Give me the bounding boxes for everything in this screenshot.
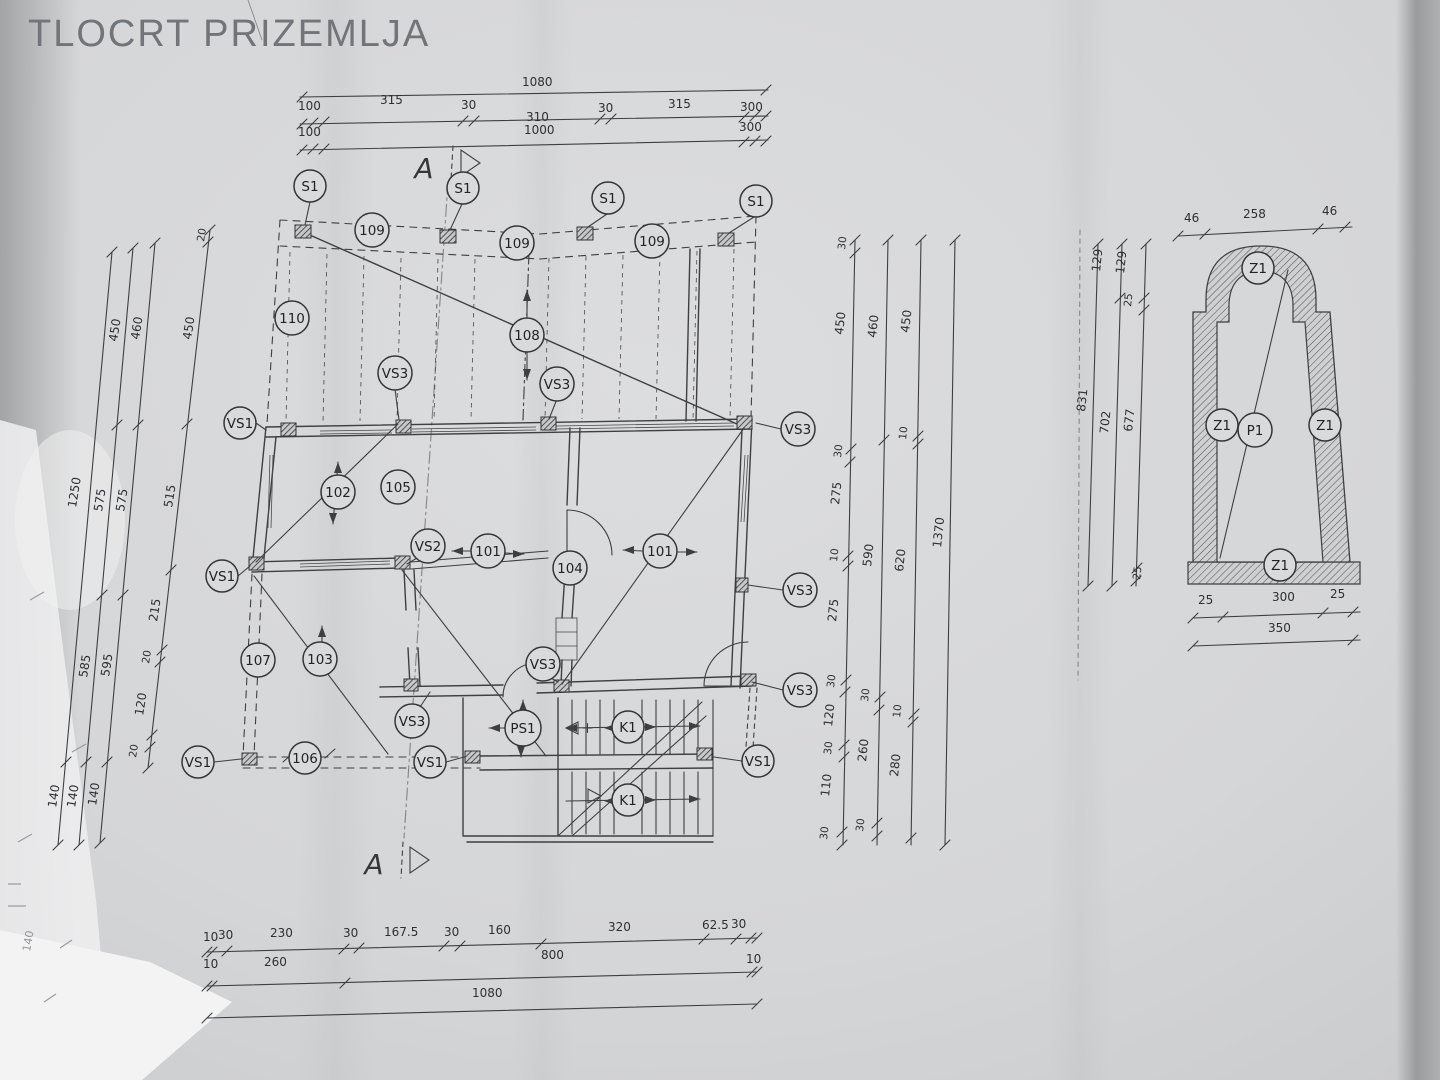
pier [395,556,410,569]
dim: 100 [298,125,321,139]
dim: 30 [836,236,849,251]
mark-vs1: VS1 [414,746,446,778]
dim: 450 [832,311,848,335]
dim: 10 [746,952,761,966]
mark-text: 103 [307,652,333,668]
mark-text: VS1 [417,755,443,771]
mark-text: VS2 [415,539,441,555]
mark-ps1: PS1 [505,710,541,746]
dim: 275 [825,598,841,622]
pier [737,416,752,429]
mark-text: 110 [279,311,305,327]
dim: 160 [488,923,511,937]
mark-s1: S1 [294,170,326,202]
mark-text: VS3 [399,714,425,730]
column-pier [718,233,734,246]
dim: 25 [1330,587,1345,601]
mark-vs3: VS3 [526,647,560,681]
mark-text: VS3 [787,683,813,699]
mark-text: Z1 [1213,418,1231,434]
mark-text: Z1 [1271,558,1289,574]
mark-text: VS3 [544,377,570,393]
mark-text: PS1 [510,721,535,737]
mark-text: VS3 [382,366,408,382]
mark-k1: K1 [612,711,644,743]
dim: 1000 [524,123,555,137]
mark-109: 109 [500,226,534,260]
right-dark-band [1396,0,1440,1080]
dim: 129 [1113,250,1129,274]
mark-text: VS1 [209,569,235,585]
mark-z1: Z1 [1242,252,1274,284]
mark-text: 101 [475,544,501,560]
mark-k1: K1 [612,784,644,816]
mark-101: 101 [471,534,505,568]
mark-s1: S1 [447,172,479,204]
mark-text: 104 [557,561,583,577]
fold-crease-right [1048,0,1112,1080]
mark-text: 105 [385,480,411,496]
pier [249,557,264,570]
dim: 280 [887,753,903,777]
dim: 30 [859,688,872,703]
dim: 450 [898,309,914,333]
pier [465,751,480,763]
column-pier [440,230,456,243]
dim: 1080 [522,75,553,89]
dim: 25 [1122,293,1135,308]
dim: 30 [598,101,613,115]
dim: 30 [854,818,867,833]
mark-p1: P1 [1238,413,1272,447]
mark-101: 101 [643,534,677,568]
mark-text: VS3 [787,583,813,599]
section-letter-top: A [412,152,433,185]
mark-106: 106 [289,742,321,774]
pier [281,423,296,436]
mark-text: 109 [504,236,530,252]
mark-s1: S1 [592,182,624,214]
dim: 20 [127,743,141,758]
dim: 10 [891,704,904,719]
dim: 702 [1097,410,1113,434]
mark-text: Z1 [1249,261,1267,277]
dim: 30 [343,926,358,940]
mark-text: S1 [301,179,318,195]
dim: 25 [1131,566,1144,581]
dim: 320 [608,920,631,934]
dim: 20 [140,649,154,664]
pier [741,674,756,686]
mark-vs3: VS3 [781,412,815,446]
mark-vs1: VS1 [742,745,774,777]
dim: 10 [897,426,910,441]
dim: 30 [218,928,233,942]
mark-vs1: VS1 [206,560,238,592]
mark-text: P1 [1247,423,1264,439]
dim: 46 [1322,204,1337,218]
mark-vs2: VS2 [411,529,445,563]
dim: 110 [818,773,834,797]
dim: 25 [1198,593,1213,607]
mark-text: K1 [619,793,636,809]
mark-text: 101 [647,544,673,560]
pier [404,679,418,691]
mark-z1: Z1 [1309,409,1341,441]
mark-text: S1 [599,191,616,207]
pier [697,748,712,760]
mark-text: Z1 [1316,418,1334,434]
dim: 831 [1074,388,1090,412]
dim: 260 [855,738,871,762]
scanned-floor-plan-photo: 140 TLOCRT PRIZEMLJA 1080 100 315 30 310… [0,0,1440,1080]
mark-vs3: VS3 [783,673,817,707]
mark-text: VS1 [185,755,211,771]
dim: 20 [195,227,209,242]
mark-text: VS1 [745,754,771,770]
pier [242,753,257,765]
dim: 30 [731,917,746,931]
section-letter-bottom: A [362,848,383,881]
mark-text: VS1 [227,416,253,432]
mark-107: 107 [241,643,275,677]
dim: 10 [828,548,841,563]
dim: 30 [825,674,838,689]
mark-102: 102 [321,475,355,509]
dim: 1080 [472,986,503,1000]
mark-109: 109 [635,224,669,258]
mark-text: 109 [359,223,385,239]
dim: 677 [1121,408,1137,432]
dim: 300 [1272,590,1295,604]
dim: 100 [298,99,321,113]
dim: 315 [668,97,691,111]
mark-108: 108 [510,318,544,352]
mark-vs3: VS3 [540,367,574,401]
mark-s1: S1 [740,185,772,217]
mark-text: 107 [245,653,271,669]
dim: 30 [444,925,459,939]
dim: 120 [821,703,837,727]
dim: 10 [203,957,218,971]
dim: 230 [270,926,293,940]
dim: 300 [739,120,762,134]
dim: 350 [1268,621,1291,635]
mark-105: 105 [381,470,415,504]
dim: 315 [380,93,403,107]
mark-vs1: VS1 [224,407,256,439]
fold-crease-left [295,0,375,1080]
pier [736,578,748,592]
mark-text: S1 [747,194,764,210]
dim: 800 [541,948,564,962]
dim: 275 [828,481,844,505]
mark-z1: Z1 [1206,409,1238,441]
dim: 167.5 [384,925,418,939]
dim: 460 [865,314,881,338]
dim: 30 [461,98,476,112]
dim: 30 [818,826,831,841]
drawing-canvas: 140 TLOCRT PRIZEMLJA 1080 100 315 30 310… [0,0,1440,1080]
column-pier [577,227,593,240]
dim: 620 [892,548,908,572]
mark-vs3: VS3 [378,356,412,390]
dim: 300 [740,100,763,114]
dim: 10 [203,930,218,944]
mark-text: 106 [292,751,318,767]
mark-text: 108 [514,328,540,344]
dim: 260 [264,955,287,969]
drawing-title: TLOCRT PRIZEMLJA [28,13,430,55]
mark-vs1: VS1 [182,746,214,778]
dim: 129 [1089,248,1105,272]
column-pier [295,225,311,238]
mark-text: K1 [619,720,636,736]
dim: 590 [860,543,876,567]
pier [554,680,569,692]
mark-text: VS3 [530,657,556,673]
mark-text: VS3 [785,422,811,438]
mark-vs3: VS3 [783,573,817,607]
mark-text: 109 [639,234,665,250]
dim: 46 [1184,211,1199,225]
dim: 310 [526,110,549,124]
fold-crease-center [512,0,572,1080]
dim: 30 [832,444,845,459]
mark-text: S1 [454,181,471,197]
mark-text: 102 [325,485,351,501]
mark-110: 110 [275,301,309,335]
pier [396,420,411,433]
mark-103: 103 [303,642,337,676]
dim: 30 [822,741,835,756]
mark-104: 104 [553,551,587,585]
mark-z1: Z1 [1264,549,1296,581]
dim: 258 [1243,207,1266,221]
mark-109: 109 [355,213,389,247]
mark-vs3: VS3 [395,704,429,738]
dim: 62.5 [702,918,729,932]
